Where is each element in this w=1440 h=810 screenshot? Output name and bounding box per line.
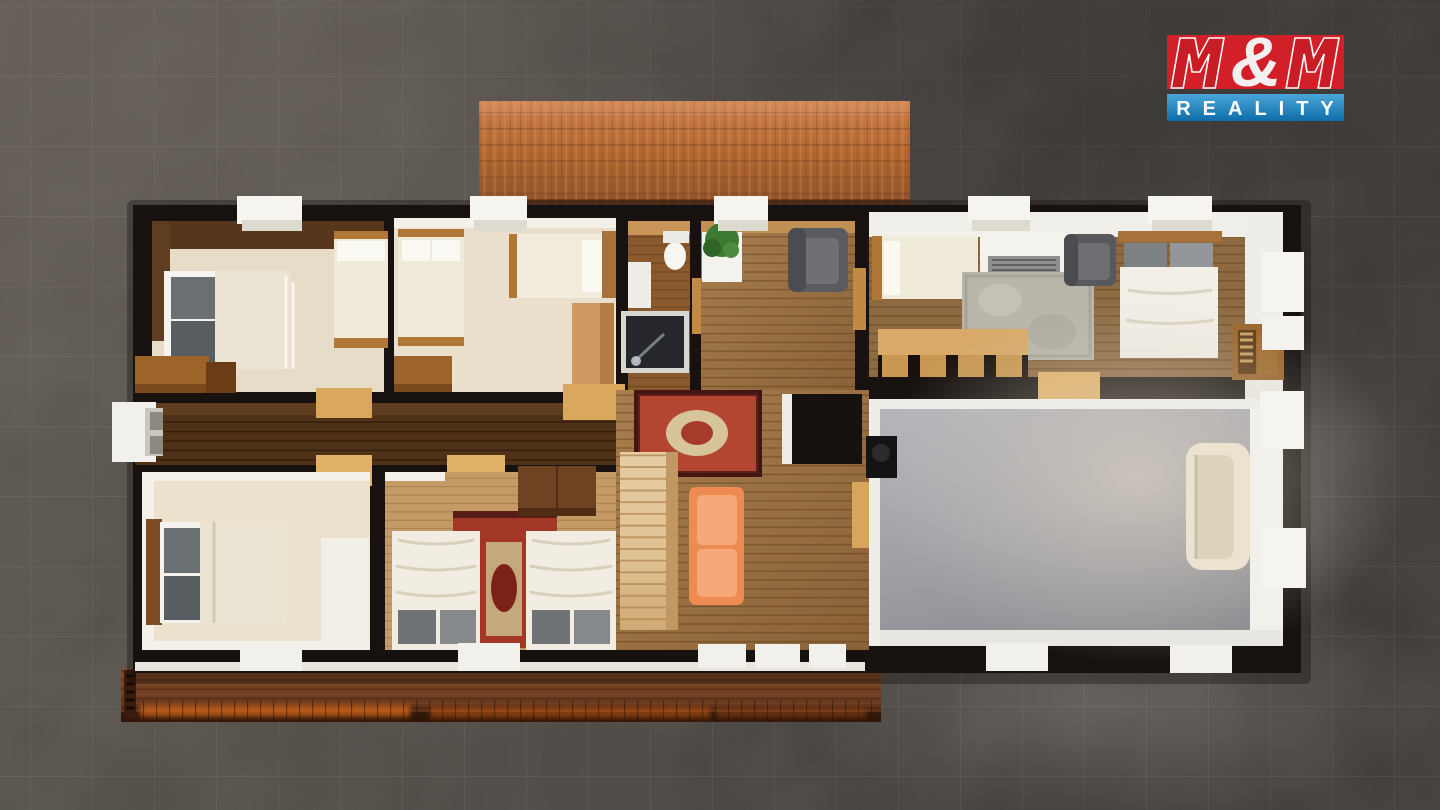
svg-text:&: & <box>1231 23 1282 101</box>
svg-text:REALITY: REALITY <box>1176 98 1346 120</box>
